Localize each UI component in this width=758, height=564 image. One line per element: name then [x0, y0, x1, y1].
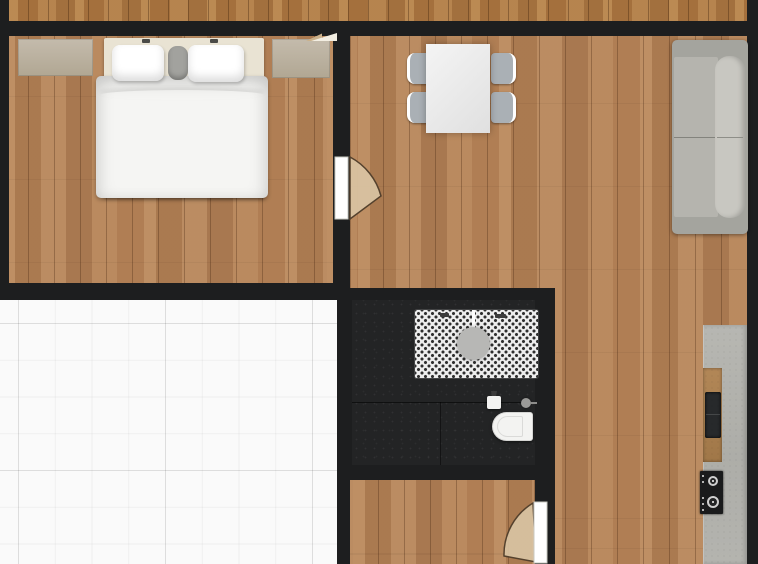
counter-wood-inset: [703, 368, 722, 462]
headboard-mark-left: [142, 39, 150, 43]
cooktop-knob: [702, 475, 704, 477]
pillow-left[interactable]: [112, 45, 164, 81]
dining-chair-bottom-right[interactable]: [491, 92, 516, 123]
valve-knob[interactable]: [521, 398, 531, 408]
bolster-cushion[interactable]: [168, 46, 188, 80]
cooktop-knob: [702, 497, 704, 499]
burner-small: [708, 476, 718, 486]
bedroom-floor: [9, 36, 333, 283]
headboard-mark-right: [210, 39, 218, 43]
sofa-back-cushions: [715, 56, 745, 218]
shower-head[interactable]: [457, 327, 490, 360]
nightstand-left[interactable]: [18, 39, 93, 76]
gas-cooktop[interactable]: [700, 471, 723, 514]
bedroom-door-leaf[interactable]: [335, 157, 348, 219]
bathroom: [337, 288, 555, 480]
wash-basin[interactable]: [487, 396, 501, 409]
cooktop-knob: [702, 503, 704, 505]
balcony-floor: [9, 0, 747, 21]
duvet[interactable]: [96, 76, 268, 198]
terrace-floor: [0, 300, 337, 564]
nightstand-right[interactable]: [272, 39, 330, 78]
dining-table[interactable]: [426, 44, 490, 133]
shower-control-mark: [440, 313, 449, 317]
hallway-wall: [535, 455, 555, 564]
tile-seam: [440, 402, 441, 465]
tile-seam: [352, 402, 535, 403]
kitchen-counter[interactable]: [703, 325, 747, 564]
pillow-right[interactable]: [188, 45, 244, 82]
cooktop-knob: [702, 509, 704, 511]
cooktop-knob: [702, 481, 704, 483]
shower-control-mark: [495, 314, 506, 318]
hallway-floor: [350, 480, 535, 564]
burner-large: [707, 496, 719, 508]
sofa[interactable]: [672, 40, 748, 234]
kitchen-sink[interactable]: [705, 392, 721, 438]
floor-plan: [0, 0, 758, 564]
dining-chair-top-right[interactable]: [491, 53, 516, 84]
sofa-seat-cushions: [674, 57, 718, 217]
toilet[interactable]: [492, 412, 533, 441]
